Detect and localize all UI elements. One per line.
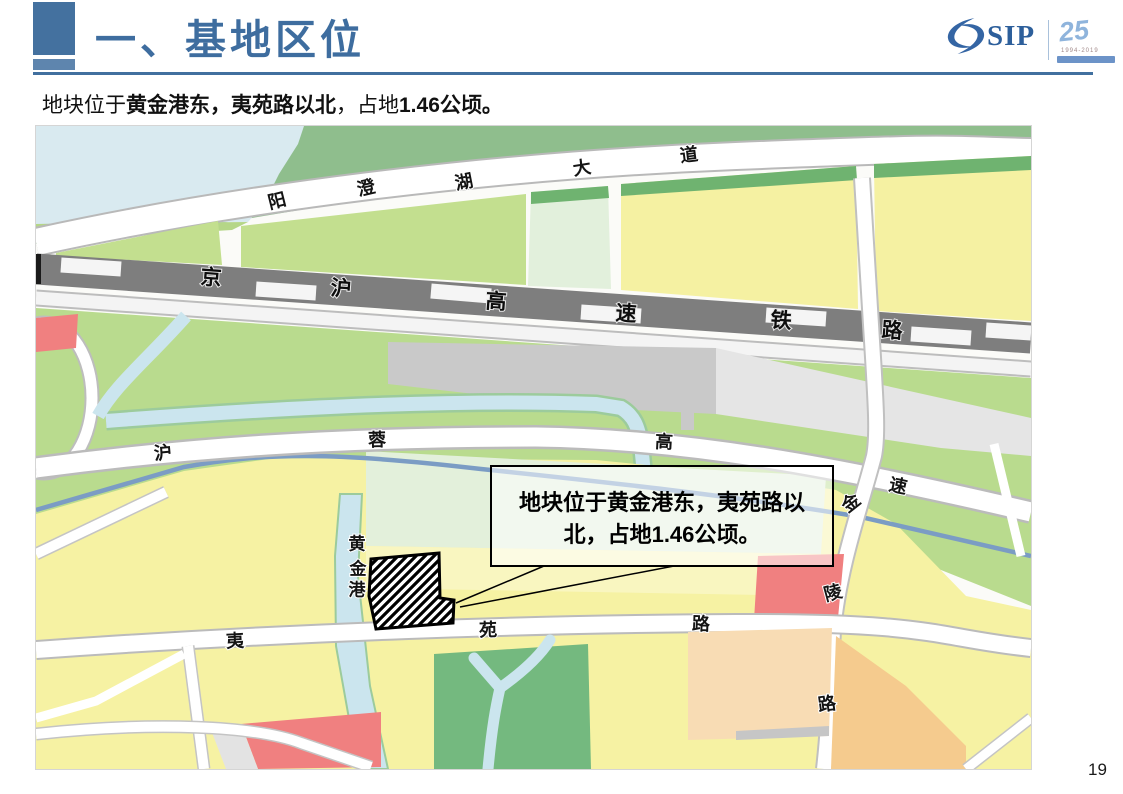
map-canvas: 阳 澄 湖 大 道 京 沪 高 速 铁 路 沪 蓉 高 速 金 陵 路 黄 金 … — [36, 126, 1031, 769]
label-hurong-1: 蓉 — [368, 430, 387, 451]
title-accent-square — [33, 2, 75, 55]
subtitle-pre: 地块位于 — [42, 94, 126, 117]
subtitle-mid: ，占地 — [336, 94, 399, 117]
anniversary-25-icon: 25 — [1057, 15, 1090, 49]
page-number: 19 — [1088, 760, 1107, 780]
label-yangchenghu-4: 道 — [679, 143, 699, 166]
label-jinghu-4: 铁 — [770, 308, 793, 333]
site-location-map: 阳 澄 湖 大 道 京 沪 高 速 铁 路 沪 蓉 高 速 金 陵 路 黄 金 … — [35, 125, 1032, 770]
label-yiyuan-2: 路 — [692, 613, 712, 635]
label-yiyuan-0: 夷 — [224, 629, 245, 651]
railway-left-tick — [36, 254, 41, 284]
anniversary-text-strip — [1057, 56, 1115, 63]
label-yangchenghu-2: 湖 — [453, 170, 474, 193]
label-jinghu-1: 沪 — [330, 276, 353, 301]
subtitle-bold-location: 黄金港东，夷苑路以北 — [126, 94, 336, 117]
sip-s-icon — [945, 14, 987, 58]
orange-parcel — [688, 628, 832, 740]
title-rule — [33, 72, 1093, 75]
logo-divider — [1048, 20, 1049, 60]
red-parcel-west-edge — [36, 314, 78, 352]
label-huangjingang-2: 港 — [349, 580, 367, 600]
title-accent-bar — [33, 59, 75, 70]
label-hurong-0: 沪 — [153, 441, 173, 463]
sip-wordmark: SIP — [987, 20, 1035, 53]
label-hurong-2: 高 — [654, 431, 673, 453]
label-jinghu-3: 速 — [615, 302, 638, 326]
station-stub — [681, 384, 694, 430]
subtitle-bold-area: 1.46公顷。 — [399, 94, 503, 117]
parcel-yellow-e — [874, 156, 1031, 321]
label-yiyuan-1: 苑 — [479, 619, 498, 641]
page-title: 一、基地区位 — [95, 6, 365, 66]
callout-box — [491, 466, 833, 566]
label-jinghu-0: 京 — [200, 265, 223, 290]
slide: 一、基地区位 地块位于黄金港东，夷苑路以北，占地1.46公顷。 SIP 25 1… — [0, 0, 1123, 794]
callout-line1: 地块位于黄金港东，夷苑路以 — [519, 490, 805, 515]
subtitle: 地块位于黄金港东，夷苑路以北，占地1.46公顷。 — [42, 89, 503, 119]
label-huangjingang-0: 黄 — [349, 534, 366, 554]
label-jinghu-2: 高 — [485, 289, 508, 314]
label-jinghu-5: 路 — [881, 318, 905, 343]
anniversary-years: 1994-2019 — [1061, 48, 1099, 54]
label-huangjingang-1: 金 — [349, 559, 368, 579]
green-parcel-south — [434, 644, 591, 769]
callout-line2: 北，占地1.46公顷。 — [564, 522, 761, 547]
label-yangchenghu-3: 大 — [571, 156, 592, 180]
sip-logo: SIP 25 1994-2019 — [945, 14, 1117, 66]
